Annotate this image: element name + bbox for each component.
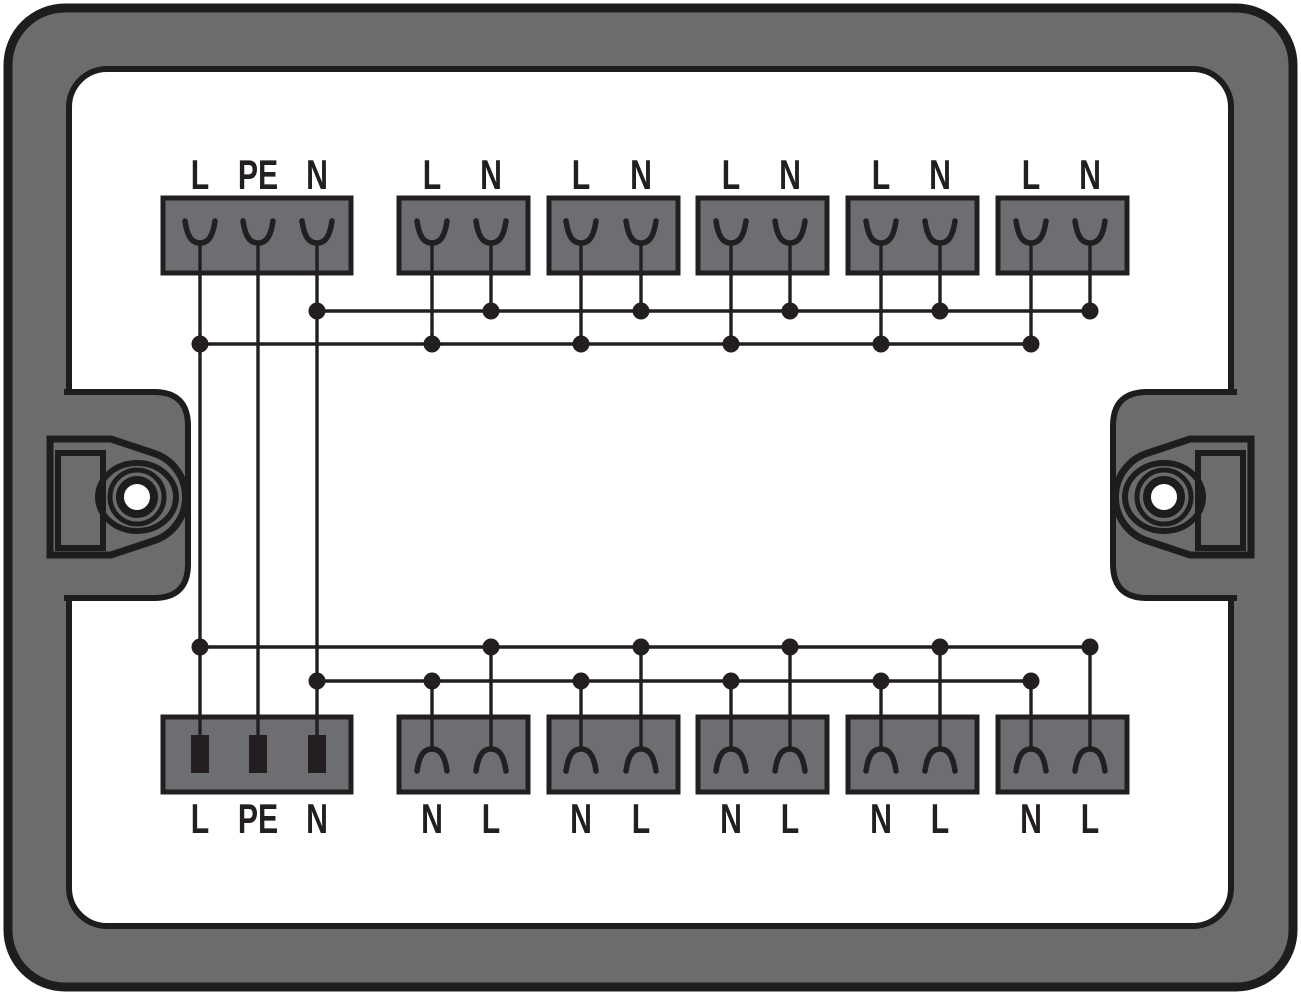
terminal-label: L: [572, 151, 590, 198]
terminal-label: PE: [238, 795, 278, 842]
junction-dot: [1082, 303, 1099, 320]
junction-dot: [573, 673, 590, 690]
terminal-label: L: [632, 795, 650, 842]
junction-dot: [1023, 336, 1040, 353]
distribution-box-diagram: L PE N L N L N L N L N L N L PE N N L N …: [0, 0, 1301, 995]
pin-terminal-icon: [308, 735, 326, 773]
junction-dot: [424, 336, 441, 353]
terminal-label: L: [1081, 795, 1099, 842]
junction-dot: [1082, 639, 1099, 656]
terminal-label: N: [480, 151, 502, 198]
junction-dot: [309, 303, 326, 320]
terminal-label: N: [720, 795, 742, 842]
junction-dot: [633, 639, 650, 656]
junction-dot: [932, 639, 949, 656]
terminal-label: N: [929, 151, 951, 198]
bottom-terminal-block-6: [998, 717, 1127, 792]
diagram-canvas: L PE N L N L N L N L N L N L PE N N L N …: [0, 0, 1301, 995]
terminal-label: N: [1020, 795, 1042, 842]
junction-dot: [723, 673, 740, 690]
junction-dot: [782, 639, 799, 656]
junction-dot: [633, 303, 650, 320]
terminal-label: L: [931, 795, 949, 842]
bottom-terminal-block-4: [698, 717, 827, 792]
junction-dot: [309, 673, 326, 690]
terminal-label: N: [1079, 151, 1101, 198]
pin-terminal-icon: [249, 735, 267, 773]
terminal-label: N: [570, 795, 592, 842]
terminal-label: L: [781, 795, 799, 842]
bottom-terminal-block-5: [848, 717, 977, 792]
terminal-label: N: [779, 151, 801, 198]
junction-dot: [873, 336, 890, 353]
terminal-label: L: [482, 795, 500, 842]
junction-dot: [873, 673, 890, 690]
terminal-label: N: [630, 151, 652, 198]
junction-dot: [573, 336, 590, 353]
bottom-terminal-block-2: [399, 717, 528, 792]
terminal-label: L: [722, 151, 740, 198]
terminal-label: L: [191, 151, 209, 198]
junction-dot: [192, 336, 209, 353]
terminal-label: N: [306, 151, 328, 198]
junction-dot: [723, 336, 740, 353]
junction-dot: [483, 303, 500, 320]
terminal-label: N: [306, 795, 328, 842]
junction-dot: [483, 639, 500, 656]
terminal-label: L: [191, 795, 209, 842]
terminal-label: L: [1022, 151, 1040, 198]
junction-dot: [782, 303, 799, 320]
junction-dot: [192, 639, 209, 656]
terminal-label: PE: [238, 151, 278, 198]
terminal-label: L: [423, 151, 441, 198]
junction-dot: [932, 303, 949, 320]
screw-hole: [1147, 480, 1181, 514]
terminal-label: N: [870, 795, 892, 842]
pin-terminal-icon: [191, 735, 209, 773]
junction-dot: [424, 673, 441, 690]
terminal-label: L: [872, 151, 890, 198]
terminal-label: N: [421, 795, 443, 842]
junction-dot: [1023, 673, 1040, 690]
screw-hole: [120, 480, 154, 514]
